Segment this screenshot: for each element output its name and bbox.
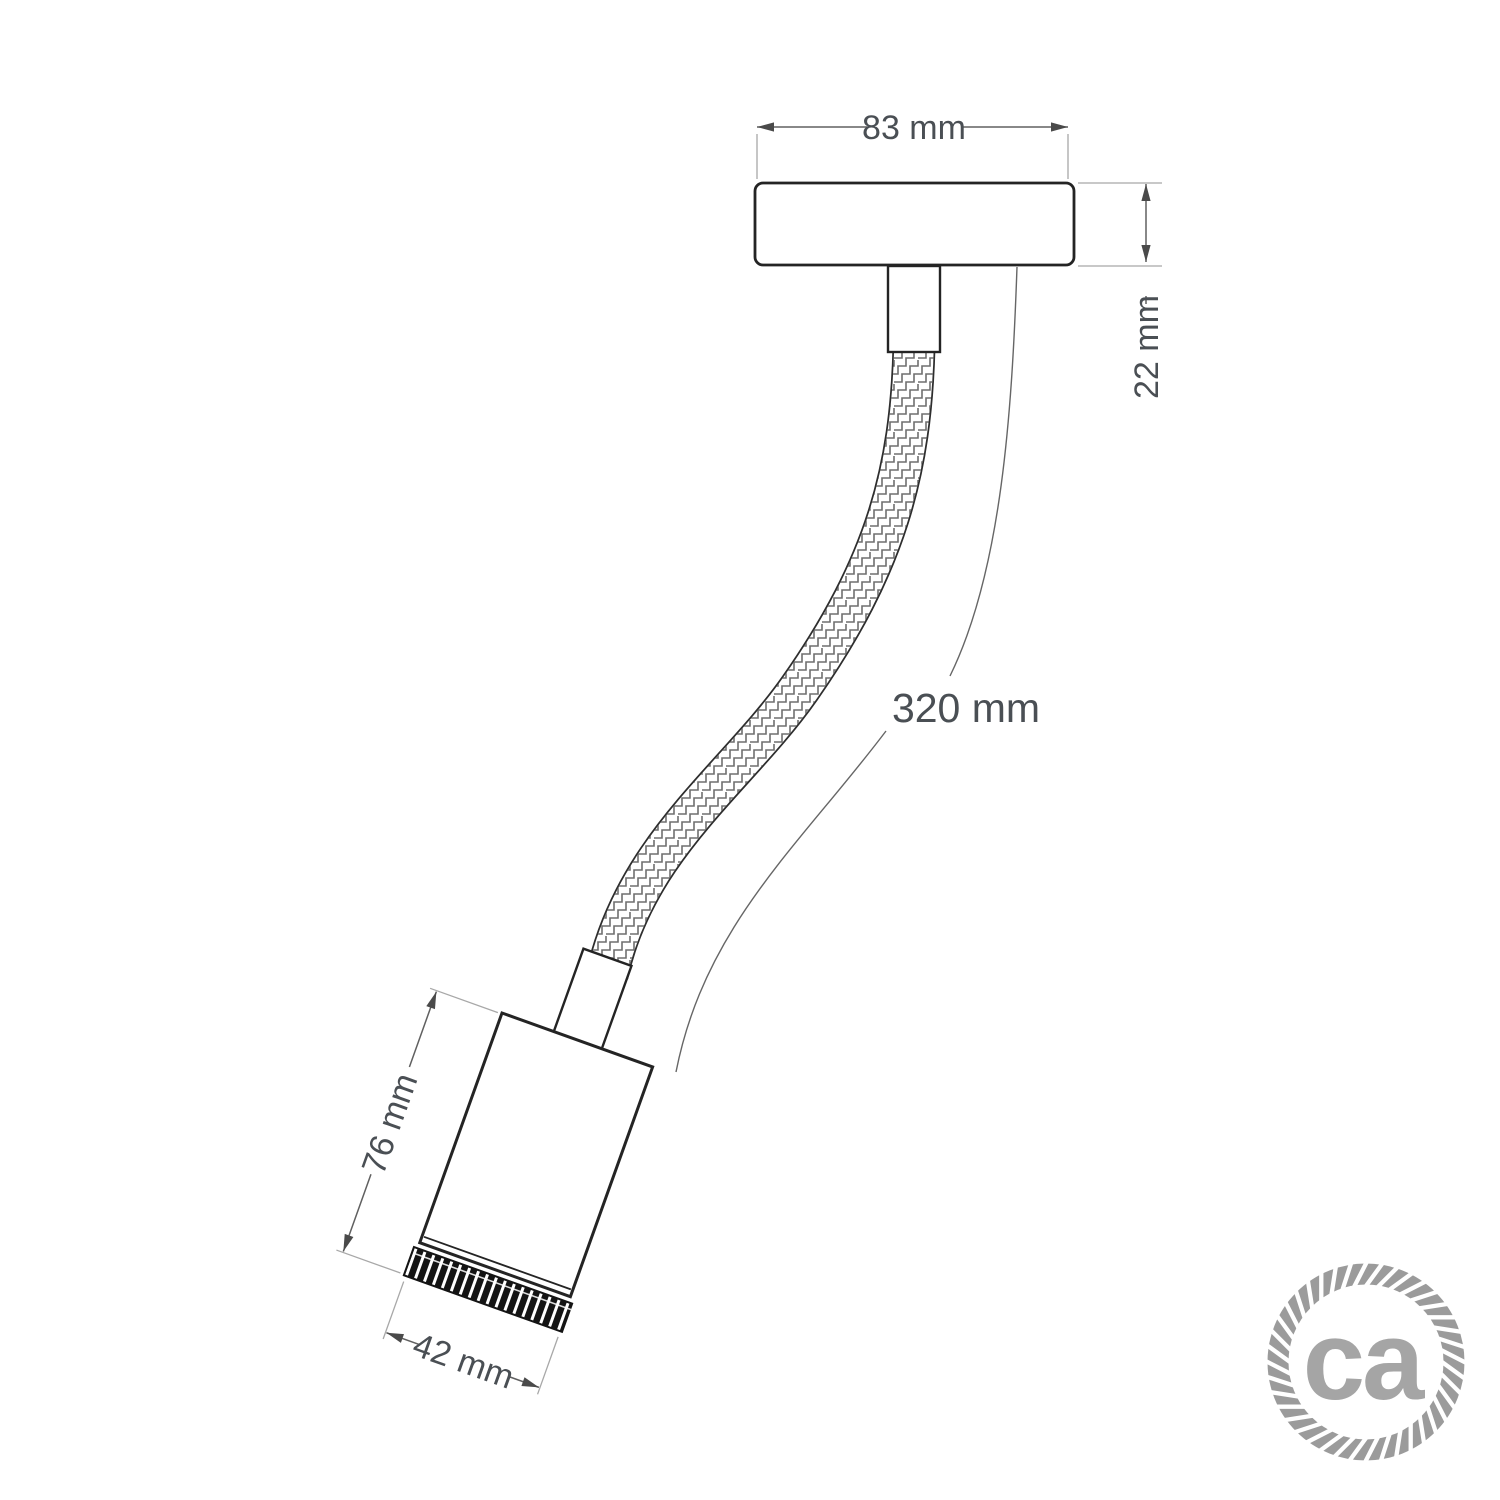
logo-text: ca [1303,1298,1425,1423]
canopy-width-label: 83 mm [862,109,966,147]
body-height-label: 76 mm [355,1068,426,1179]
arm-braid-texture [607,346,914,975]
spotlight-technical-drawing: 83 mm 22 mm 320 mm [0,0,1500,1500]
ceiling-rose [755,183,1074,352]
dimension-canopy-width: 83 mm [757,109,1068,179]
dimension-arm-length: 320 mm [676,267,1040,1072]
cable-gland-stem [888,266,940,352]
canopy-height-label: 22 mm [1128,295,1166,399]
arm-length-label: 320 mm [892,685,1040,731]
canopy-body [755,183,1074,265]
extension-lines [1078,183,1162,266]
dimension-canopy-height: 22 mm [1078,183,1166,399]
lamp-body [420,1013,653,1297]
body-diameter-label: 42 mm [408,1326,519,1397]
brand-logo: ca [1265,1261,1467,1463]
spotlight-assembly: 76 mm 42 mm [299,901,687,1408]
technical-drawing-page: 83 mm 22 mm 320 mm [0,0,1500,1500]
flexible-arm [607,346,914,975]
leader-line-upper [950,267,1017,676]
